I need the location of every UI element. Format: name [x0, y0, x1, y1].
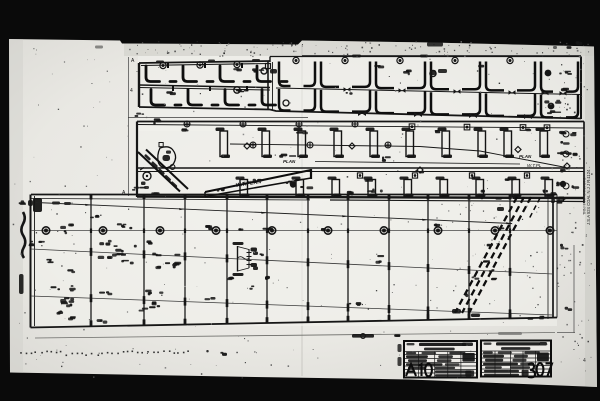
svg-text:D: D — [551, 199, 556, 205]
svg-text:PLAN: PLAN — [283, 159, 296, 164]
svg-text:J.S.A 524 COAL N.J J R 1124: J.S.A 524 COAL N.J J R 1124 — [586, 169, 591, 225]
svg-text:PLAN: PLAN — [519, 154, 532, 159]
svg-text:W.T.PL: W.T.PL — [527, 163, 542, 168]
svg-text:4: 4 — [583, 358, 586, 364]
svg-text:TRN=FTV+8 T.W 57 2: TRN=FTV+8 T.W 57 2 — [583, 178, 587, 216]
svg-text:4: 4 — [130, 88, 133, 94]
